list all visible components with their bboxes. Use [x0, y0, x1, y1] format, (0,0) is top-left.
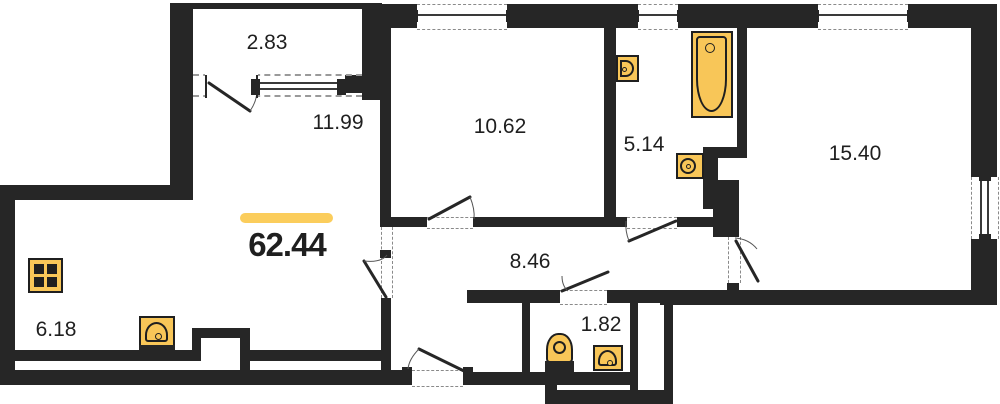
- door-swing-arc: [250, 90, 257, 111]
- wc-toilet-tank: [545, 361, 574, 373]
- door-leaf: [209, 83, 250, 111]
- door-swing-arc: [470, 197, 474, 219]
- room-area-label-hallway: 8.46: [490, 250, 570, 274]
- total-area-accent-bar: [240, 213, 333, 223]
- room-area-label-bathroom: 5.14: [604, 133, 684, 157]
- wc-sink-icon: [593, 345, 623, 371]
- door-leaf: [562, 272, 608, 291]
- kitchen-sink-base: [139, 345, 175, 351]
- room-area-label-balcony: 2.83: [227, 31, 307, 55]
- door-swing-arc: [626, 221, 629, 241]
- stove-icon: [28, 258, 63, 293]
- door-leaf: [629, 221, 676, 241]
- room-area-label-bedroom1: 10.62: [460, 115, 540, 139]
- door-leaf: [419, 349, 464, 371]
- door-swing-arc: [364, 255, 387, 261]
- wc-toilet-icon: [546, 333, 573, 363]
- room-area-label-kitchen: 6.18: [16, 318, 96, 342]
- room-area-label-bedroom2: 15.40: [815, 142, 895, 166]
- room-area-label-living: 11.99: [298, 111, 378, 135]
- total-area-label: 62.44: [233, 226, 341, 264]
- door-swing-arc: [408, 349, 419, 369]
- bathtub-icon: [691, 31, 733, 118]
- room-area-label-wc: 1.82: [561, 313, 641, 337]
- door-leaf: [429, 197, 470, 219]
- door-leaf: [364, 261, 386, 297]
- floor-plan: 2.83 11.99 10.62 5.14 15.40 8.46 6.18 1.…: [0, 0, 1000, 404]
- bathroom-sink-icon: [616, 55, 639, 82]
- kitchen-sink-icon: [139, 316, 175, 347]
